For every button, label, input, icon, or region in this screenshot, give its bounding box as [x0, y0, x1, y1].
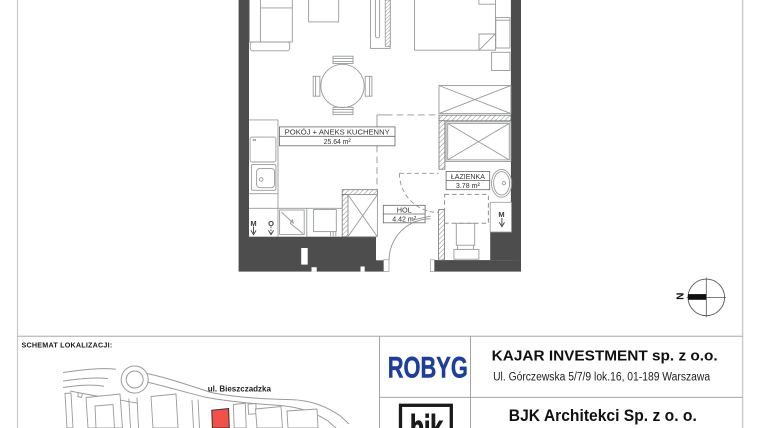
svg-text:M: M	[498, 210, 504, 219]
svg-text:N: N	[674, 293, 685, 300]
svg-text:ŁAZIENKA: ŁAZIENKA	[451, 172, 486, 181]
svg-text:4.42 m²: 4.42 m²	[392, 214, 416, 223]
svg-text:Ul. Górczewska 5/7/9 lok.16, 0: Ul. Górczewska 5/7/9 lok.16, 01-189 Wars…	[493, 372, 711, 384]
svg-text:HOL: HOL	[397, 206, 412, 215]
svg-text:ul. Bieszczadzka: ul. Bieszczadzka	[208, 385, 272, 394]
svg-text:25.64 m²: 25.64 m²	[324, 137, 351, 146]
svg-text:SCHEMAT LOKALIZACJI:: SCHEMAT LOKALIZACJI:	[22, 341, 113, 350]
svg-text:POKÓJ + ANEKS KUCHENNY: POKÓJ + ANEKS KUCHENNY	[285, 128, 390, 137]
svg-text:3.78 m²: 3.78 m²	[456, 181, 480, 190]
svg-text:KAJAR INVESTMENT sp. z o.o.: KAJAR INVESTMENT sp. z o.o.	[492, 347, 718, 364]
svg-text:bjk: bjk	[410, 409, 443, 428]
svg-text:ROBYG: ROBYG	[388, 352, 468, 385]
svg-text:BJK Architekci Sp. z o. o.: BJK Architekci Sp. z o. o.	[509, 407, 697, 425]
